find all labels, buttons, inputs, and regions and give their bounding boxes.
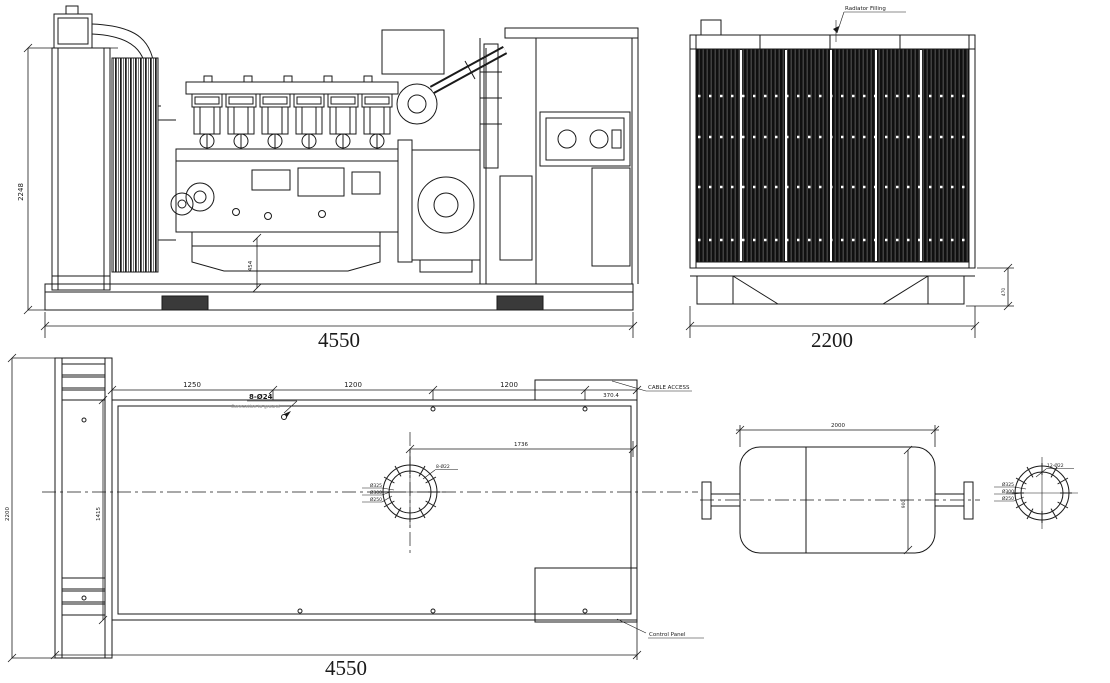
plan-view: 1250 1200 1200 370.4 CABLE ACCESS 8-Ø24 … [5, 354, 704, 680]
side-width-dim-label: 4550 [318, 328, 360, 352]
tank-flange-bolt-callout: 12-Ø22 [1047, 462, 1064, 469]
alternator-slats [592, 168, 630, 266]
tank-depth-dim-label: 900 [901, 500, 907, 509]
radiator-filling-label: Radiator Filling [845, 6, 886, 12]
skid-height-dim-label: 470 [1001, 288, 1007, 297]
plan-seg3-label: 1200 [500, 381, 518, 389]
skid-height-dimension [966, 264, 1014, 310]
exhaust-offset-dim-label: 1736 [514, 442, 528, 448]
turbocharger [397, 50, 505, 124]
plan-radiator-section [55, 358, 112, 658]
anchor-bolt-callout-label: 8-Ø24 [249, 393, 273, 401]
engine-block [171, 149, 398, 271]
plan-depth-dim-label: 2200 [5, 507, 11, 521]
front-elevation-view: Radiator Filling [686, 6, 1014, 352]
plan-seg2-label: 1200 [344, 381, 362, 389]
ground-note-label: Connection to ground [231, 404, 280, 410]
canopy-frame [480, 28, 638, 284]
mounting-foot [162, 296, 208, 310]
radiator-grille [696, 49, 969, 262]
muffler [54, 6, 92, 48]
ga-drawing-canvas: 2248 [0, 0, 1110, 683]
plan-seg1-label: 1250 [183, 381, 201, 389]
plan-width-dim-label: 4550 [325, 656, 367, 680]
plan-depth-dimension [8, 354, 55, 662]
anchor-bolt-leader [284, 401, 297, 413]
plan-width-dimension [51, 622, 641, 660]
side-elevation-view: 2248 [17, 6, 638, 352]
skid-foot [697, 276, 733, 304]
plan-skid [112, 400, 637, 620]
front-base-skid [690, 268, 975, 304]
cable-access-label: CABLE ACCESS [648, 385, 690, 391]
radiator-filling-leader [836, 12, 906, 42]
control-panel-label: Control Panel [649, 632, 686, 638]
oil-pan [192, 232, 380, 271]
side-detail-dim-label: 454 [248, 260, 254, 271]
side-height-dim-label: 2248 [17, 183, 25, 201]
control-box [540, 112, 630, 166]
plan-seg4-label: 370.4 [603, 393, 619, 399]
alternator [398, 140, 480, 272]
filler-neck [701, 20, 721, 35]
base-skid [45, 284, 633, 310]
mounting-foot [497, 296, 543, 310]
engine-cylinders [186, 76, 398, 149]
control-panel-leader [617, 619, 646, 633]
anchor-bolt-holes [82, 407, 587, 613]
plan-inner-depth-dim-label: 1415 [96, 507, 102, 521]
plan-flange-bolt-callout: 8-Ø22 [436, 463, 450, 470]
skid-foot [928, 276, 964, 304]
drawing-sheet: 2248 [0, 0, 1110, 683]
tank-width-dim-label: 2000 [831, 423, 845, 429]
fuel-tank-plan-view: 2000 900 12-Ø22 Ø325 Ø300 Ø250 [700, 423, 1078, 554]
air-intake [382, 30, 444, 74]
tank-connection-stubs [702, 482, 973, 519]
radiator-core [112, 58, 158, 272]
side-detail-dimension [253, 234, 261, 292]
front-width-dim-label: 2200 [811, 328, 853, 352]
louver-panel [500, 176, 532, 260]
tank-flange [1006, 457, 1078, 529]
radiator [52, 48, 176, 290]
